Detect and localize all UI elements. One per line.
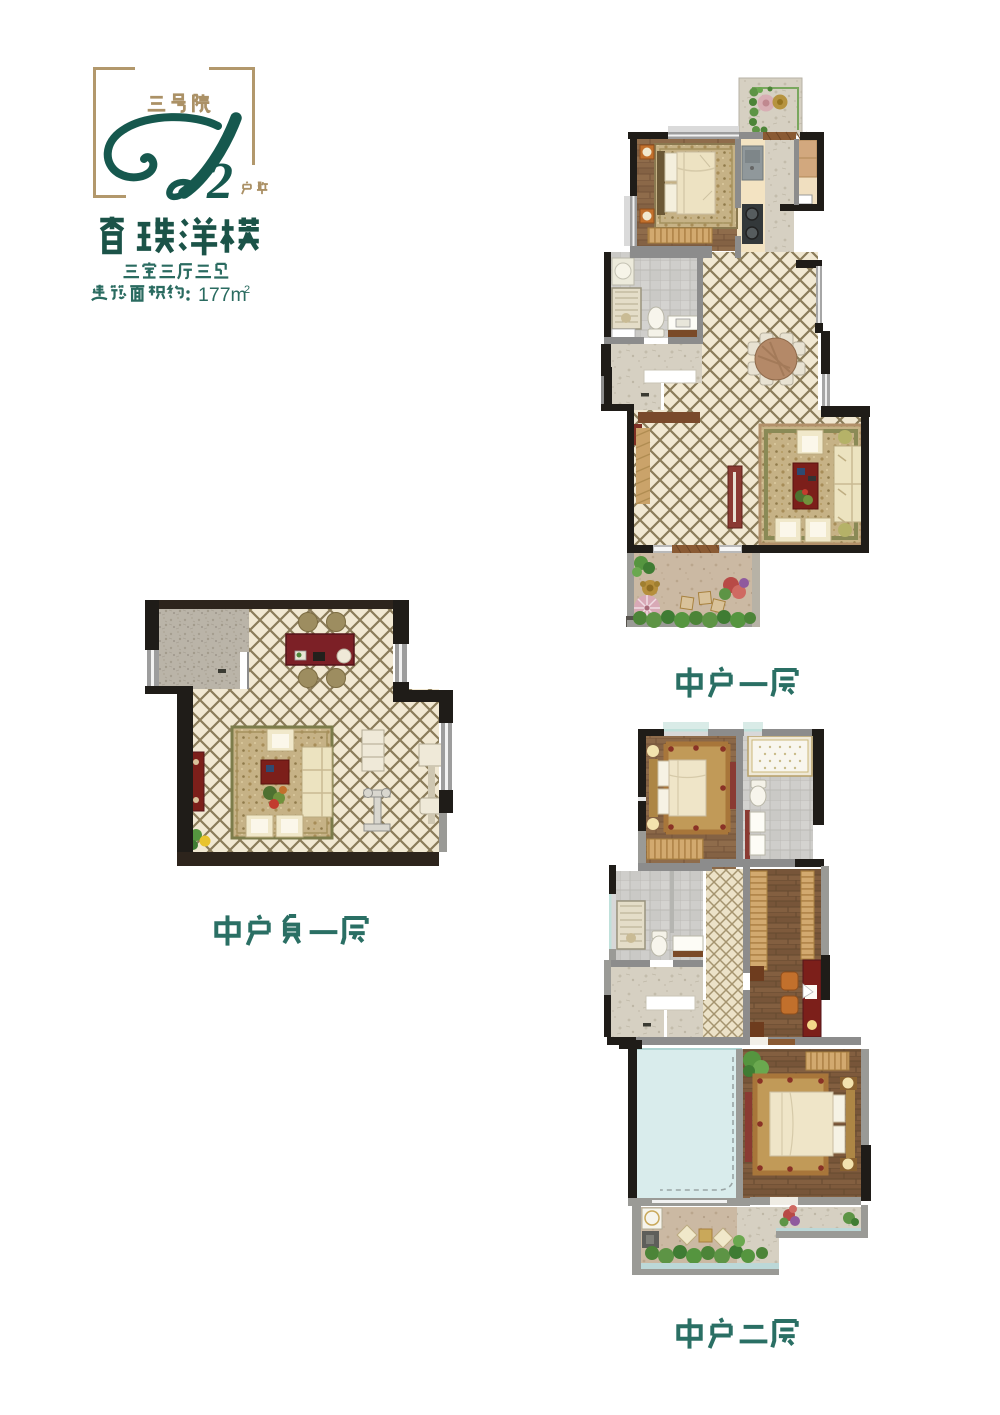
svg-text:2: 2 [206,153,233,210]
svg-text:2: 2 [244,284,250,296]
svg-text:177m: 177m [198,284,247,306]
